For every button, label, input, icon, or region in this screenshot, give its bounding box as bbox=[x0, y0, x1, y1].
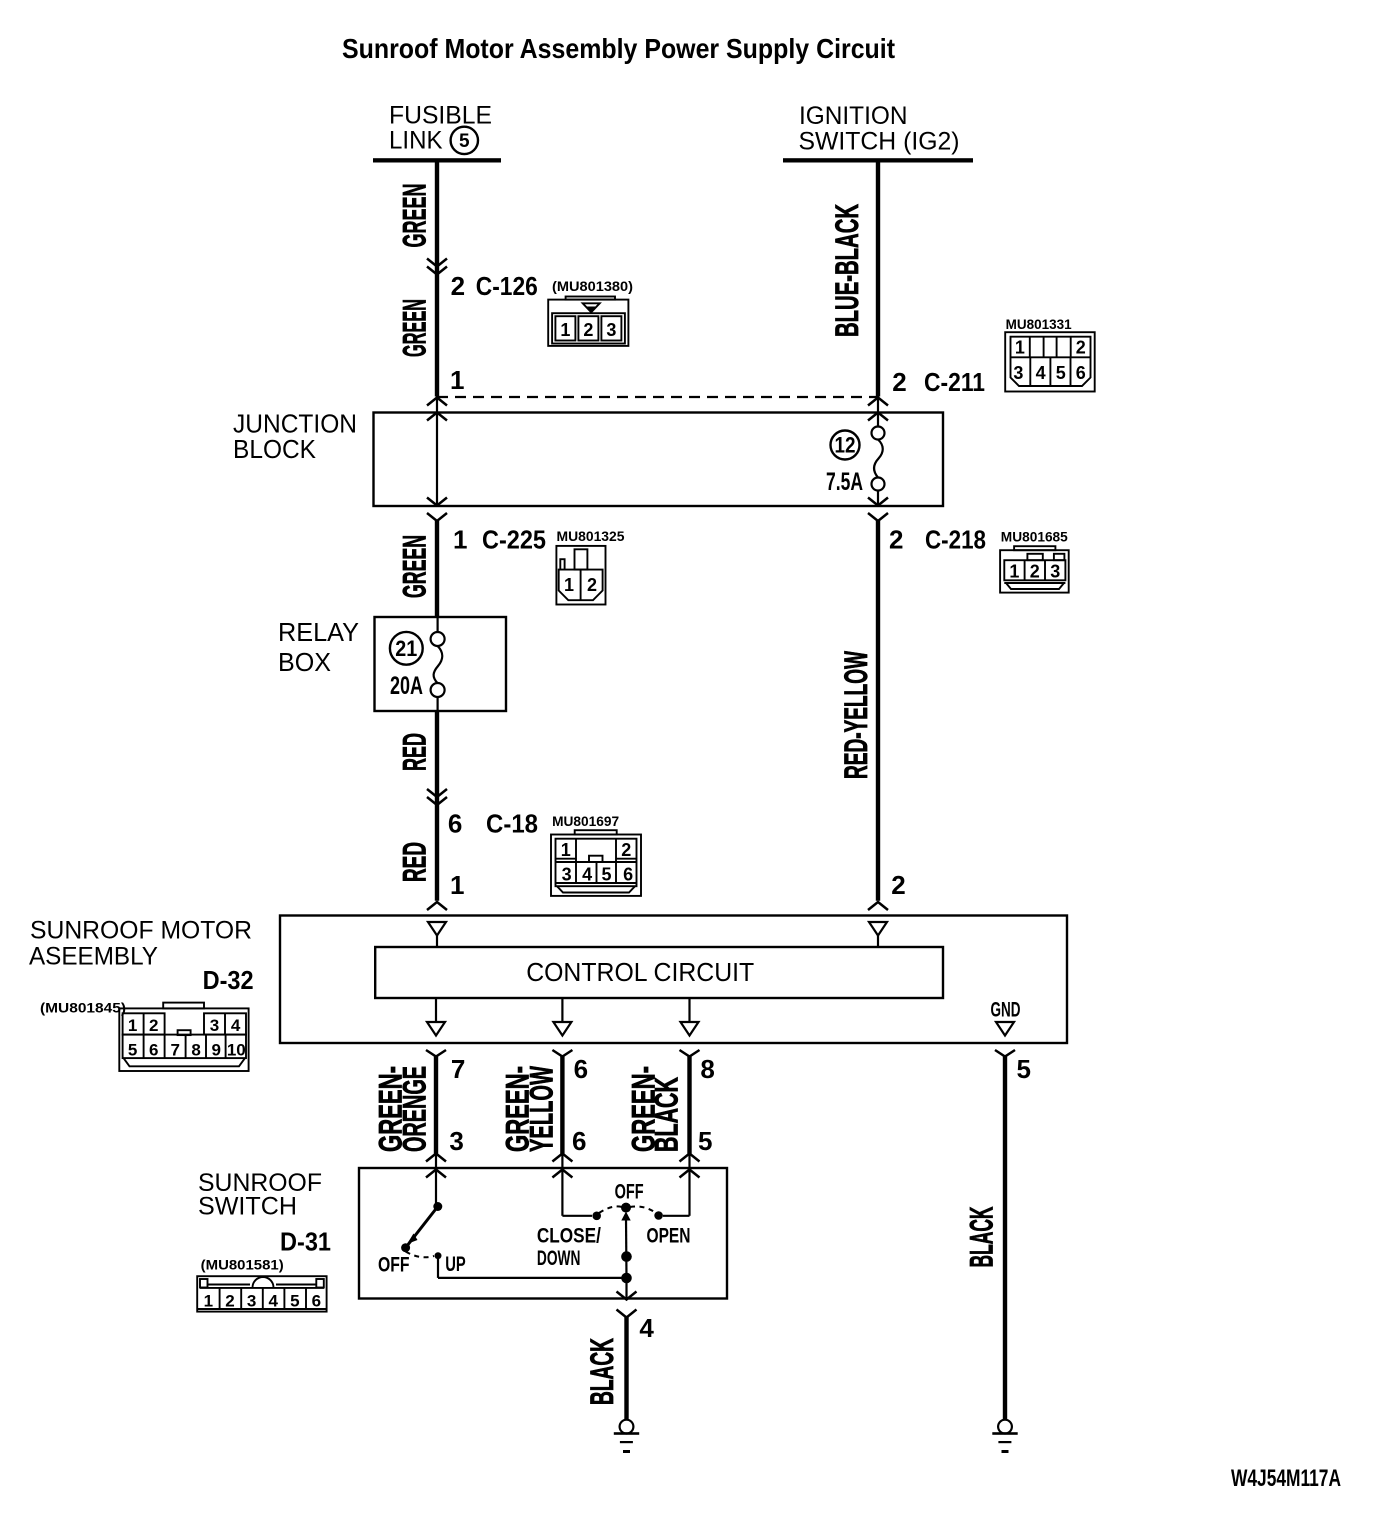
svg-text:BOX: BOX bbox=[278, 647, 331, 677]
svg-text:6: 6 bbox=[149, 1041, 158, 1060]
svg-text:OPEN: OPEN bbox=[647, 1224, 691, 1247]
svg-text:8: 8 bbox=[191, 1041, 200, 1060]
svg-text:4: 4 bbox=[582, 865, 592, 885]
svg-text:BLACK: BLACK bbox=[649, 1077, 685, 1152]
svg-text:(MU801845): (MU801845) bbox=[40, 1000, 126, 1016]
svg-text:1: 1 bbox=[561, 840, 571, 860]
svg-text:BLUE-BLACK: BLUE-BLACK bbox=[829, 204, 865, 337]
svg-text:5: 5 bbox=[290, 1292, 299, 1311]
svg-text:D-31: D-31 bbox=[280, 1227, 331, 1257]
svg-text:3: 3 bbox=[1013, 363, 1023, 383]
svg-text:1: 1 bbox=[450, 870, 464, 900]
svg-text:MU801685: MU801685 bbox=[1001, 529, 1068, 545]
svg-text:1: 1 bbox=[128, 1016, 137, 1035]
svg-text:2: 2 bbox=[587, 575, 597, 595]
svg-text:C-18: C-18 bbox=[486, 809, 538, 839]
svg-text:YELLOW: YELLOW bbox=[524, 1065, 560, 1152]
svg-text:GREEN: GREEN bbox=[397, 535, 433, 598]
svg-text:2: 2 bbox=[889, 525, 903, 555]
svg-text:6: 6 bbox=[448, 809, 462, 839]
svg-text:5: 5 bbox=[1017, 1054, 1031, 1084]
svg-text:4: 4 bbox=[231, 1016, 241, 1035]
svg-text:MU801331: MU801331 bbox=[1006, 316, 1072, 332]
svg-text:2: 2 bbox=[892, 367, 906, 397]
svg-text:1: 1 bbox=[1009, 562, 1019, 582]
svg-text:OFF: OFF bbox=[615, 1181, 644, 1204]
svg-text:C-225: C-225 bbox=[482, 525, 546, 555]
svg-text:2: 2 bbox=[583, 320, 593, 340]
svg-text:W4J54M117A: W4J54M117A bbox=[1231, 1465, 1341, 1492]
svg-text:6: 6 bbox=[572, 1126, 586, 1156]
svg-text:SWITCH: SWITCH bbox=[198, 1193, 297, 1221]
svg-text:3: 3 bbox=[210, 1016, 219, 1035]
svg-text:6: 6 bbox=[574, 1054, 588, 1084]
svg-text:3: 3 bbox=[1050, 562, 1060, 582]
svg-text:1: 1 bbox=[1015, 338, 1025, 358]
svg-text:(MU801380): (MU801380) bbox=[552, 278, 633, 294]
svg-text:RED: RED bbox=[396, 733, 432, 771]
svg-text:5: 5 bbox=[601, 865, 611, 885]
svg-text:2: 2 bbox=[1076, 338, 1086, 358]
svg-text:6: 6 bbox=[312, 1292, 321, 1311]
svg-text:3: 3 bbox=[449, 1126, 463, 1156]
svg-text:6: 6 bbox=[623, 865, 633, 885]
svg-text:9: 9 bbox=[211, 1041, 220, 1060]
svg-text:5: 5 bbox=[698, 1126, 712, 1156]
svg-text:2: 2 bbox=[225, 1292, 234, 1311]
svg-text:MU801697: MU801697 bbox=[552, 813, 619, 829]
svg-text:4: 4 bbox=[639, 1313, 654, 1343]
svg-text:C-218: C-218 bbox=[925, 525, 986, 555]
svg-text:(MU801581): (MU801581) bbox=[201, 1257, 284, 1273]
svg-text:CLOSE/: CLOSE/ bbox=[537, 1224, 601, 1247]
svg-text:2: 2 bbox=[891, 870, 905, 900]
svg-text:1: 1 bbox=[560, 320, 570, 340]
svg-text:7: 7 bbox=[451, 1054, 465, 1084]
svg-text:MU801325: MU801325 bbox=[557, 528, 625, 544]
svg-text:5: 5 bbox=[459, 131, 470, 152]
svg-text:3: 3 bbox=[247, 1292, 256, 1311]
svg-text:3: 3 bbox=[606, 320, 616, 340]
svg-text:1: 1 bbox=[204, 1292, 213, 1311]
svg-text:GREEN: GREEN bbox=[397, 299, 433, 357]
svg-text:CONTROL CIRCUIT: CONTROL CIRCUIT bbox=[526, 957, 754, 987]
svg-text:12: 12 bbox=[835, 433, 856, 458]
svg-text:SWITCH (IG2): SWITCH (IG2) bbox=[799, 128, 960, 156]
svg-text:C-211: C-211 bbox=[924, 367, 985, 397]
svg-text:20A: 20A bbox=[390, 672, 423, 700]
svg-text:1: 1 bbox=[564, 575, 574, 595]
svg-text:UP: UP bbox=[445, 1253, 466, 1276]
svg-text:DOWN: DOWN bbox=[537, 1247, 581, 1270]
svg-text:SUNROOF MOTOR: SUNROOF MOTOR bbox=[30, 917, 252, 945]
svg-text:FUSIBLE: FUSIBLE bbox=[389, 102, 492, 130]
svg-text:1: 1 bbox=[450, 365, 464, 395]
svg-text:10: 10 bbox=[227, 1041, 246, 1060]
svg-text:1: 1 bbox=[453, 525, 467, 555]
svg-text:ASEEMBLY: ASEEMBLY bbox=[29, 942, 158, 970]
svg-text:2: 2 bbox=[451, 271, 465, 301]
svg-text:LINK: LINK bbox=[389, 127, 443, 155]
svg-text:GREEN: GREEN bbox=[397, 184, 433, 248]
svg-text:3: 3 bbox=[562, 865, 572, 885]
svg-text:RED: RED bbox=[396, 842, 432, 882]
svg-text:4: 4 bbox=[268, 1292, 278, 1311]
svg-text:BLACK: BLACK bbox=[584, 1338, 620, 1405]
svg-text:RELAY: RELAY bbox=[278, 617, 359, 647]
svg-text:ORENGE: ORENGE bbox=[397, 1066, 433, 1152]
svg-text:D-32: D-32 bbox=[203, 965, 254, 995]
svg-text:Sunroof Motor Assembly Power S: Sunroof Motor Assembly Power Supply Circ… bbox=[342, 33, 895, 64]
svg-text:RED-YELLOW: RED-YELLOW bbox=[838, 651, 874, 779]
svg-text:GND: GND bbox=[991, 999, 1021, 1022]
svg-text:7.5A: 7.5A bbox=[826, 468, 863, 496]
svg-text:2: 2 bbox=[149, 1016, 158, 1035]
svg-text:BLACK: BLACK bbox=[964, 1207, 1000, 1268]
svg-text:BLOCK: BLOCK bbox=[233, 434, 317, 464]
svg-text:C-126: C-126 bbox=[476, 271, 538, 301]
svg-text:5: 5 bbox=[128, 1041, 137, 1060]
svg-text:6: 6 bbox=[1076, 363, 1086, 383]
svg-text:IGNITION: IGNITION bbox=[799, 102, 908, 130]
svg-text:8: 8 bbox=[700, 1054, 714, 1084]
svg-text:7: 7 bbox=[170, 1041, 179, 1060]
svg-text:2: 2 bbox=[621, 840, 631, 860]
svg-text:5: 5 bbox=[1056, 363, 1066, 383]
svg-text:21: 21 bbox=[395, 636, 417, 661]
svg-text:4: 4 bbox=[1036, 363, 1046, 383]
svg-text:2: 2 bbox=[1030, 562, 1040, 582]
svg-text:OFF: OFF bbox=[378, 1254, 410, 1277]
